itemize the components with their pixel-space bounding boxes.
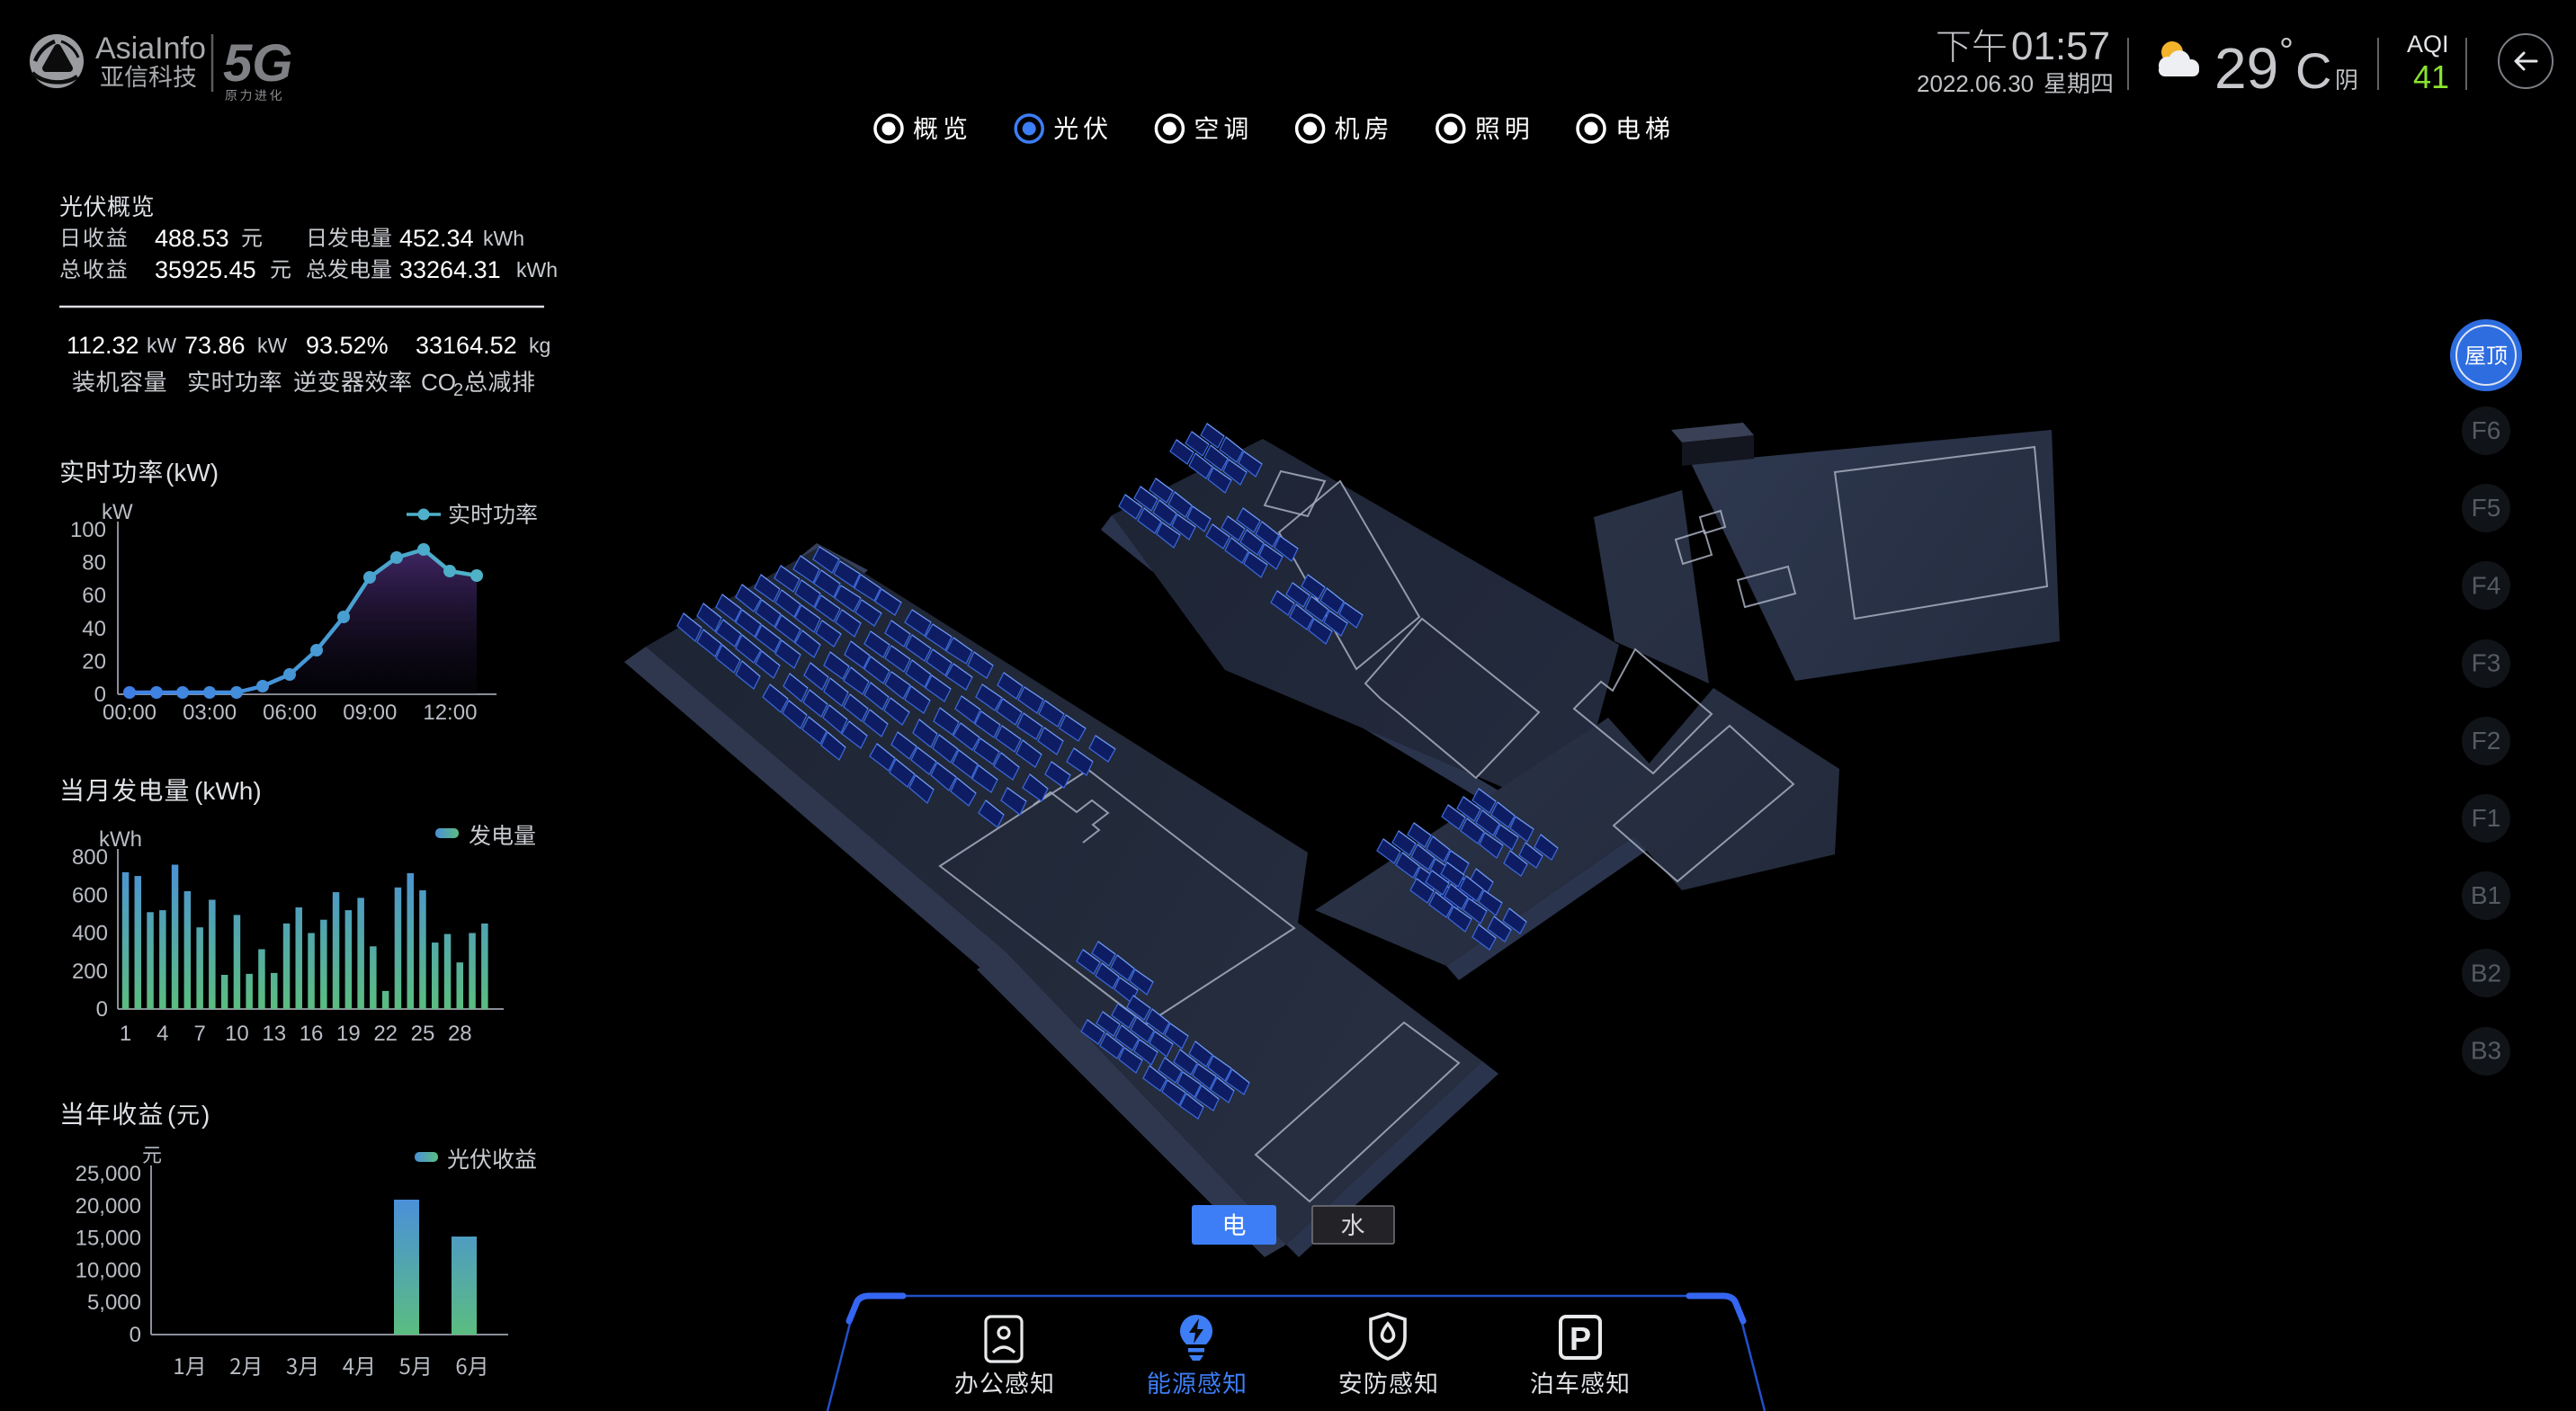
svg-text:15,000: 15,000 bbox=[76, 1227, 141, 1251]
svg-text:10,000: 10,000 bbox=[76, 1258, 141, 1282]
svg-text:16: 16 bbox=[300, 1022, 324, 1046]
svg-text:20,000: 20,000 bbox=[76, 1194, 141, 1219]
svg-text:F5: F5 bbox=[2472, 494, 2501, 522]
svg-text:): ) bbox=[201, 1101, 210, 1129]
svg-text:F2: F2 bbox=[2472, 727, 2501, 755]
svg-text:40: 40 bbox=[82, 617, 106, 641]
svg-text:20: 20 bbox=[82, 649, 106, 674]
svg-text:C: C bbox=[2295, 42, 2331, 99]
svg-text:22: 22 bbox=[373, 1022, 398, 1046]
svg-text:400: 400 bbox=[72, 922, 108, 946]
svg-text:5,000: 5,000 bbox=[87, 1290, 141, 1315]
svg-text:452.34: 452.34 bbox=[399, 225, 474, 252]
svg-text:488.53: 488.53 bbox=[155, 225, 229, 252]
svg-text:(kWh): (kWh) bbox=[194, 777, 262, 805]
svg-text:AsiaInfo: AsiaInfo bbox=[95, 31, 206, 66]
svg-text:10: 10 bbox=[225, 1022, 249, 1046]
svg-text:60: 60 bbox=[82, 584, 106, 608]
svg-text:7: 7 bbox=[193, 1022, 205, 1046]
svg-text:73.86: 73.86 bbox=[184, 332, 246, 359]
svg-text:(: ( bbox=[167, 1101, 176, 1129]
svg-text:80: 80 bbox=[82, 551, 106, 576]
svg-text:12:00: 12:00 bbox=[423, 701, 477, 725]
svg-text:kW: kW bbox=[102, 500, 133, 524]
svg-text:0: 0 bbox=[96, 997, 108, 1022]
svg-text:19: 19 bbox=[336, 1022, 361, 1046]
svg-text:2022.06.30: 2022.06.30 bbox=[1917, 70, 2034, 97]
svg-text:00:00: 00:00 bbox=[103, 701, 157, 725]
svg-text:25: 25 bbox=[411, 1022, 435, 1046]
svg-text:5G: 5G bbox=[223, 34, 292, 93]
svg-text:F3: F3 bbox=[2472, 649, 2501, 677]
svg-text:93.52%: 93.52% bbox=[306, 332, 389, 359]
svg-text:01:57: 01:57 bbox=[2011, 24, 2110, 68]
svg-text:kg: kg bbox=[529, 334, 550, 357]
svg-text:41: 41 bbox=[2413, 58, 2449, 95]
svg-text:2: 2 bbox=[453, 380, 463, 400]
svg-text:1: 1 bbox=[120, 1022, 131, 1046]
svg-text:03:00: 03:00 bbox=[183, 701, 237, 725]
svg-text:B3: B3 bbox=[2471, 1037, 2501, 1065]
svg-text:F1: F1 bbox=[2472, 804, 2501, 832]
svg-text:33264.31: 33264.31 bbox=[399, 256, 501, 283]
svg-text:F6: F6 bbox=[2472, 416, 2501, 444]
svg-text:(kW): (kW) bbox=[165, 459, 219, 487]
svg-text:kWh: kWh bbox=[516, 258, 558, 281]
svg-text:600: 600 bbox=[72, 883, 108, 907]
svg-text:09:00: 09:00 bbox=[343, 701, 397, 725]
svg-text:AQI: AQI bbox=[2407, 31, 2449, 58]
svg-text:B2: B2 bbox=[2471, 959, 2501, 987]
svg-text:kW: kW bbox=[257, 334, 288, 357]
svg-text:06:00: 06:00 bbox=[263, 701, 317, 725]
svg-text:kW: kW bbox=[147, 334, 177, 357]
svg-text:28: 28 bbox=[448, 1022, 472, 1046]
svg-text:P: P bbox=[1570, 1320, 1591, 1357]
svg-text:29: 29 bbox=[2214, 36, 2278, 101]
svg-text:35925.45: 35925.45 bbox=[155, 256, 256, 283]
svg-text:°: ° bbox=[2279, 31, 2294, 71]
svg-text:0: 0 bbox=[130, 1323, 141, 1347]
svg-text:kWh: kWh bbox=[99, 827, 142, 852]
svg-text:B1: B1 bbox=[2471, 881, 2501, 909]
svg-text:F4: F4 bbox=[2472, 571, 2501, 599]
svg-text:4: 4 bbox=[157, 1022, 168, 1046]
svg-text:kWh: kWh bbox=[483, 227, 524, 250]
svg-text:25,000: 25,000 bbox=[76, 1162, 141, 1186]
svg-text:33164.52: 33164.52 bbox=[416, 332, 517, 359]
svg-text:100: 100 bbox=[70, 518, 106, 542]
svg-text:CO: CO bbox=[421, 369, 456, 396]
svg-text:112.32: 112.32 bbox=[67, 332, 139, 359]
svg-text:13: 13 bbox=[262, 1022, 286, 1046]
svg-text:200: 200 bbox=[72, 960, 108, 984]
